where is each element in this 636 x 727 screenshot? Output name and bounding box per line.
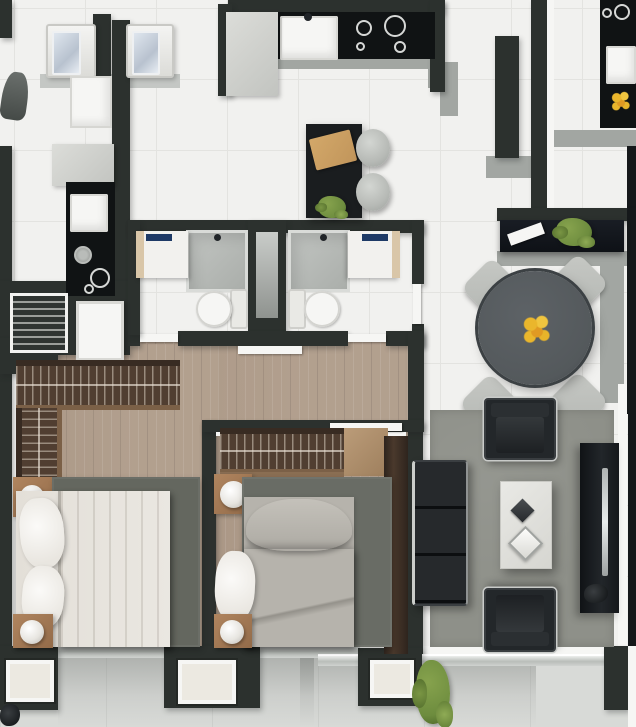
window-1 bbox=[6, 660, 54, 702]
cooktop-burner-2 bbox=[384, 15, 406, 37]
wall-entry-stub bbox=[495, 36, 519, 158]
floor-plan bbox=[0, 0, 636, 727]
bed1-lamp-b bbox=[20, 620, 44, 644]
bed2-lamp-b bbox=[220, 620, 244, 644]
bathB-faucets bbox=[362, 234, 388, 241]
bed1-blanket bbox=[58, 491, 170, 647]
wall-bath-right-upper bbox=[412, 220, 424, 284]
washer-2 bbox=[126, 24, 174, 78]
bed2-wardrobe-top bbox=[220, 428, 344, 474]
wall-right-edge-living bbox=[628, 384, 636, 662]
unitR-flowers bbox=[610, 90, 632, 112]
bed1-wardrobe-top bbox=[16, 360, 180, 410]
tv-decor bbox=[584, 584, 608, 603]
wall-top-left bbox=[0, 0, 12, 38]
unitL-knob bbox=[74, 246, 92, 264]
table-flowers bbox=[521, 313, 553, 345]
window-2 bbox=[178, 660, 236, 704]
stool-2 bbox=[356, 173, 390, 211]
wall-corridor bbox=[408, 331, 424, 426]
unitL-appliance bbox=[76, 301, 124, 361]
bedroom1-door bbox=[238, 346, 302, 354]
unitR-divider-trim bbox=[547, 0, 554, 214]
balcony-corner-decor bbox=[0, 704, 20, 726]
wall-bottom-4 bbox=[604, 646, 628, 710]
cooktop-burner-3 bbox=[356, 42, 365, 51]
living-right-trim bbox=[618, 384, 627, 650]
bathA-faucets bbox=[146, 234, 172, 241]
unitL-shelf bbox=[10, 293, 68, 353]
kitchen-faucet bbox=[304, 13, 312, 21]
unitR-burner-1 bbox=[614, 4, 630, 20]
wall-outer-left bbox=[0, 146, 12, 660]
island-plant bbox=[318, 196, 346, 218]
unitL-fridge bbox=[52, 144, 114, 186]
unitL-sink bbox=[70, 194, 108, 232]
unitR-burner-2 bbox=[602, 8, 612, 18]
bathA-toilet bbox=[196, 289, 248, 329]
armchair-bottom bbox=[484, 588, 556, 652]
window-3 bbox=[370, 660, 414, 698]
bathB-side-door bbox=[413, 284, 421, 324]
armchair-top bbox=[484, 398, 556, 460]
cooktop-burner-4 bbox=[394, 41, 406, 53]
entry-wall-cap bbox=[486, 156, 534, 178]
bathB-toilet bbox=[288, 289, 340, 329]
balcony-plant bbox=[416, 660, 450, 724]
laundry-sink bbox=[70, 76, 112, 128]
wall-unitR-divider bbox=[531, 0, 547, 222]
unitR-sink bbox=[606, 46, 636, 84]
stool-1 bbox=[356, 129, 390, 167]
bottom-right-trim bbox=[628, 646, 636, 727]
bathA-showerhead bbox=[214, 234, 221, 241]
unitR-floor-band bbox=[549, 130, 636, 147]
kitchen-sink bbox=[280, 16, 338, 60]
cooktop-burner-1 bbox=[356, 20, 372, 36]
shaft-duct bbox=[256, 232, 278, 318]
bed2-blanket bbox=[244, 549, 354, 647]
bathB-showerhead bbox=[320, 234, 327, 241]
unitL-burner-2 bbox=[84, 284, 94, 294]
sideboard-plant bbox=[556, 218, 592, 246]
bed2-pillow bbox=[246, 499, 352, 551]
bathA-door bbox=[140, 334, 178, 342]
tv bbox=[602, 468, 608, 576]
sofa bbox=[412, 460, 468, 606]
bathB-shower bbox=[288, 230, 350, 292]
bathB-door bbox=[348, 334, 386, 342]
kitchen-fridge bbox=[226, 12, 278, 96]
bed2-dresser bbox=[344, 428, 388, 476]
bed1-wardrobe-side bbox=[16, 408, 62, 484]
washer-1 bbox=[46, 24, 96, 78]
wall-bath-bottom-mid bbox=[178, 331, 348, 346]
